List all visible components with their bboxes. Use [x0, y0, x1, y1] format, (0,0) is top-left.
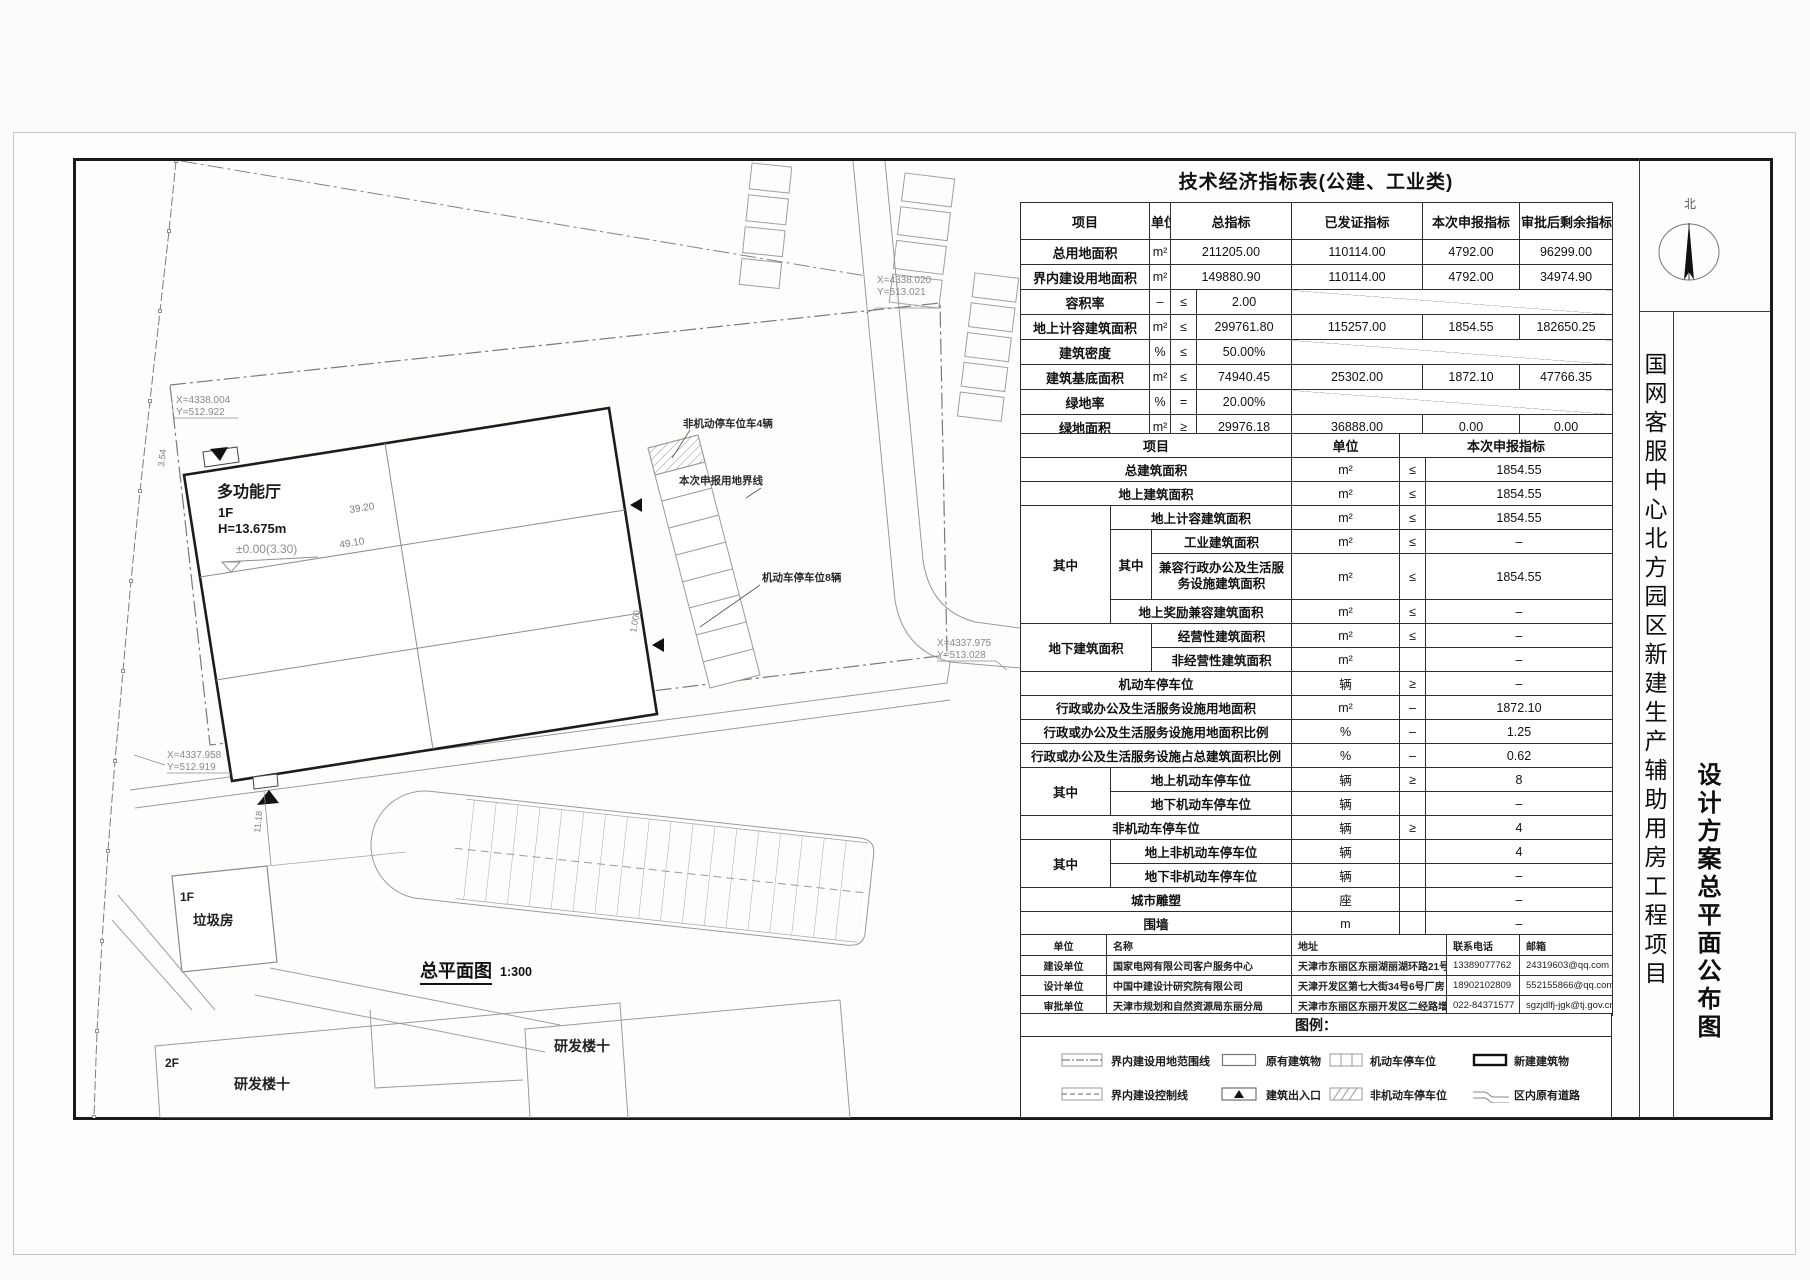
indicator-table-title: 技术经济指标表(公建、工业类)	[1020, 168, 1612, 198]
north-label: 北	[1684, 197, 1696, 211]
legend-label: 新建建筑物	[1514, 1053, 1569, 1069]
existing-structures-row-c	[739, 163, 792, 289]
svg-text:Y=512.919: Y=512.919	[167, 762, 216, 773]
legend-symbol-control-line	[1061, 1087, 1103, 1103]
table-header-row: 项目单位本次申报指标	[1021, 434, 1613, 458]
road-junction-kerb	[947, 662, 950, 683]
svg-text:X=4338.020: X=4338.020	[877, 275, 932, 286]
legend-label: 界内建设控制线	[1111, 1087, 1188, 1103]
svg-text:Y=513.021: Y=513.021	[877, 287, 926, 298]
legend-symbol-new-building	[1472, 1053, 1508, 1069]
title-strip-divider-mid	[1673, 311, 1674, 1118]
table-row: 行政或办公及生活服务设施占总建筑面积比例%–0.62	[1021, 744, 1613, 768]
svg-text:Y=513.028: Y=513.028	[937, 650, 986, 661]
coord-callout-1: X=4338.004Y=512.922	[170, 387, 238, 418]
rd-right-outline	[525, 1000, 850, 1118]
rd-left-outline	[155, 1003, 628, 1118]
legend-label: 界内建设用地范围线	[1111, 1053, 1210, 1069]
legend-symbol-building-entrance	[1221, 1087, 1257, 1103]
table-row: 建筑基底面积m²≤74940.4525302.001872.1047766.35	[1021, 365, 1613, 390]
table-row: 行政或办公及生活服务设施用地面积比例%–1.25	[1021, 720, 1613, 744]
table-row: 非机动车停车位辆≥4	[1021, 816, 1613, 840]
coord-callout-3: X=4337.975Y=513.028	[937, 638, 1007, 670]
legend-symbol-existing-building	[1221, 1053, 1257, 1069]
svg-text:X=4337.958: X=4337.958	[167, 750, 222, 761]
table-row: 总建筑面积m²≤1854.55	[1021, 458, 1613, 482]
table-row: 地上建筑面积m²≤1854.55	[1021, 482, 1613, 506]
table-header-row: 项目单位 总指标已发证指标 本次申报指标审批后剩余指标	[1021, 203, 1613, 240]
table-row: 界内建设用地面积m²149880.90110114.004792.0034974…	[1021, 265, 1613, 290]
north-boundary-line	[181, 161, 866, 276]
fence-control-line	[94, 161, 176, 1117]
table-header-row: 单位名称 地址联系电话邮箱	[1021, 935, 1613, 956]
site-plan: ±0.00(3.30) 多功能厅 1F H=13.675m 39.20 49.1…	[76, 161, 1020, 1118]
table-row: 其中地上机动车停车位辆≥8	[1021, 768, 1613, 792]
legend-label: 非机动车停车位	[1370, 1087, 1447, 1103]
dim-3-54: 3.54	[156, 449, 168, 468]
dim-11-18: 11.18	[252, 810, 264, 833]
table-row: 城市雕塑座–	[1021, 888, 1613, 912]
legend-symbol-land-range-line	[1061, 1053, 1103, 1069]
legend-label: 原有建筑物	[1266, 1053, 1321, 1069]
table-row: 行政或办公及生活服务设施用地面积m²–1872.10	[1021, 696, 1613, 720]
legend-symbol-bike-parking	[1329, 1087, 1363, 1103]
org-info-table: 单位名称 地址联系电话邮箱 建设单位国家电网有限公司客户服务中心天津市东丽区东丽…	[1020, 934, 1613, 1016]
table-row: 围墙m–	[1021, 912, 1613, 936]
building-main-outline	[184, 408, 657, 781]
table-row: 地下建筑面积经营性建筑面积m²≤–	[1021, 624, 1613, 648]
building-floors-label: 1F	[218, 505, 233, 520]
trash-floors-label: 1F	[180, 890, 194, 904]
table-row: 机动车停车位辆≥–	[1021, 672, 1613, 696]
table-row: 绿地率%=20.00%	[1021, 390, 1613, 415]
entrance-icon-right-2	[652, 638, 664, 652]
legend-symbol-existing-road	[1472, 1087, 1510, 1103]
legend-symbol-car-parking	[1329, 1053, 1363, 1069]
table-row: 地上计容建筑面积m²≤299761.80115257.001854.551826…	[1021, 315, 1613, 340]
plan-scale: 1:300	[500, 965, 532, 979]
table-row: 其中地上计容建筑面积m²≤1854.55	[1021, 506, 1613, 530]
table-row: 其中地上非机动车停车位辆4	[1021, 840, 1613, 864]
building-name-label: 多功能厅	[217, 482, 281, 501]
car-parking-label: 机动车停车位8辆	[762, 571, 842, 584]
svg-text:Y=512.922: Y=512.922	[176, 407, 225, 418]
trash-name-label: 垃圾房	[193, 912, 234, 928]
bike-parking-label: 非机动停车位车4辆	[683, 417, 773, 430]
entrance-porch-bottom	[253, 774, 278, 789]
indicator-table: 项目单位 总指标已发证指标 本次申报指标审批后剩余指标 总用地面积m²21120…	[1020, 202, 1613, 440]
boundary-leader	[746, 488, 761, 498]
legend-label: 区内原有道路	[1514, 1087, 1580, 1103]
table-row: 建设单位国家电网有限公司客户服务中心天津市东丽区东丽湖丽湖环路21号133890…	[1021, 956, 1613, 976]
drawing-canvas: ±0.00(3.30) 多功能厅 1F H=13.675m 39.20 49.1…	[0, 0, 1810, 1280]
road-ns-east-edge	[885, 161, 1020, 628]
declared-indicator-table: 项目单位本次申报指标 总建筑面积m²≤1854.55 地上建筑面积m²≤1854…	[1020, 433, 1613, 960]
table-row: 建筑密度%≤50.00%	[1021, 340, 1613, 365]
rd-left-floors: 2F	[165, 1056, 179, 1070]
rd-right-name: 研发楼十	[554, 1038, 610, 1054]
table-row: 总用地面积m²211205.00110114.004792.0096299.00	[1021, 240, 1613, 265]
legend-label: 机动车停车位	[1370, 1053, 1436, 1069]
legend-title: 图例：	[1020, 1013, 1612, 1037]
plan-title: 总平面图	[420, 960, 492, 981]
svg-text:X=4338.004: X=4338.004	[176, 395, 231, 406]
table-row: 设计单位中国中建设计研究院有限公司天津开发区第七大街34号6号厂房1890210…	[1021, 976, 1613, 996]
svg-text:X=4337.975: X=4337.975	[937, 638, 992, 649]
building-height-label: H=13.675m	[218, 521, 286, 536]
sheet-title-vertical: 设计方案总平面公布图	[1688, 762, 1724, 1062]
parking-loop	[365, 785, 875, 946]
diagonal-strike-cell	[1292, 290, 1613, 315]
trash-house-ext	[267, 852, 406, 866]
north-box-divider	[1639, 311, 1771, 312]
project-title-vertical: 国网客服中心北方园区新建生产辅助用房工程项目	[1641, 352, 1671, 1002]
existing-structures-row-b	[957, 273, 1018, 421]
boundary-label: 本次申报用地界线	[679, 474, 763, 487]
table-row: 容积率–≤2.00	[1021, 290, 1613, 315]
road-ns-west-edge	[853, 161, 1020, 668]
north-arrow: 北	[1648, 190, 1732, 302]
diagonal-strike-cell	[1292, 390, 1613, 415]
legend-label: 建筑出入口	[1266, 1087, 1321, 1103]
diagonal-strike-cell	[1292, 340, 1613, 365]
entrance-icon-right-1	[630, 498, 642, 512]
coord-callout-4: X=4337.958Y=512.919	[134, 750, 231, 773]
level-label: ±0.00(3.30)	[236, 542, 297, 556]
legend-box: 界内建设用地范围线 原有建筑物 机动车停车位 新建建筑物 界内建设控制线 建筑出…	[1020, 1036, 1612, 1118]
entrance-icon-bottom	[257, 790, 279, 805]
rd-left-name: 研发楼十	[234, 1076, 290, 1092]
